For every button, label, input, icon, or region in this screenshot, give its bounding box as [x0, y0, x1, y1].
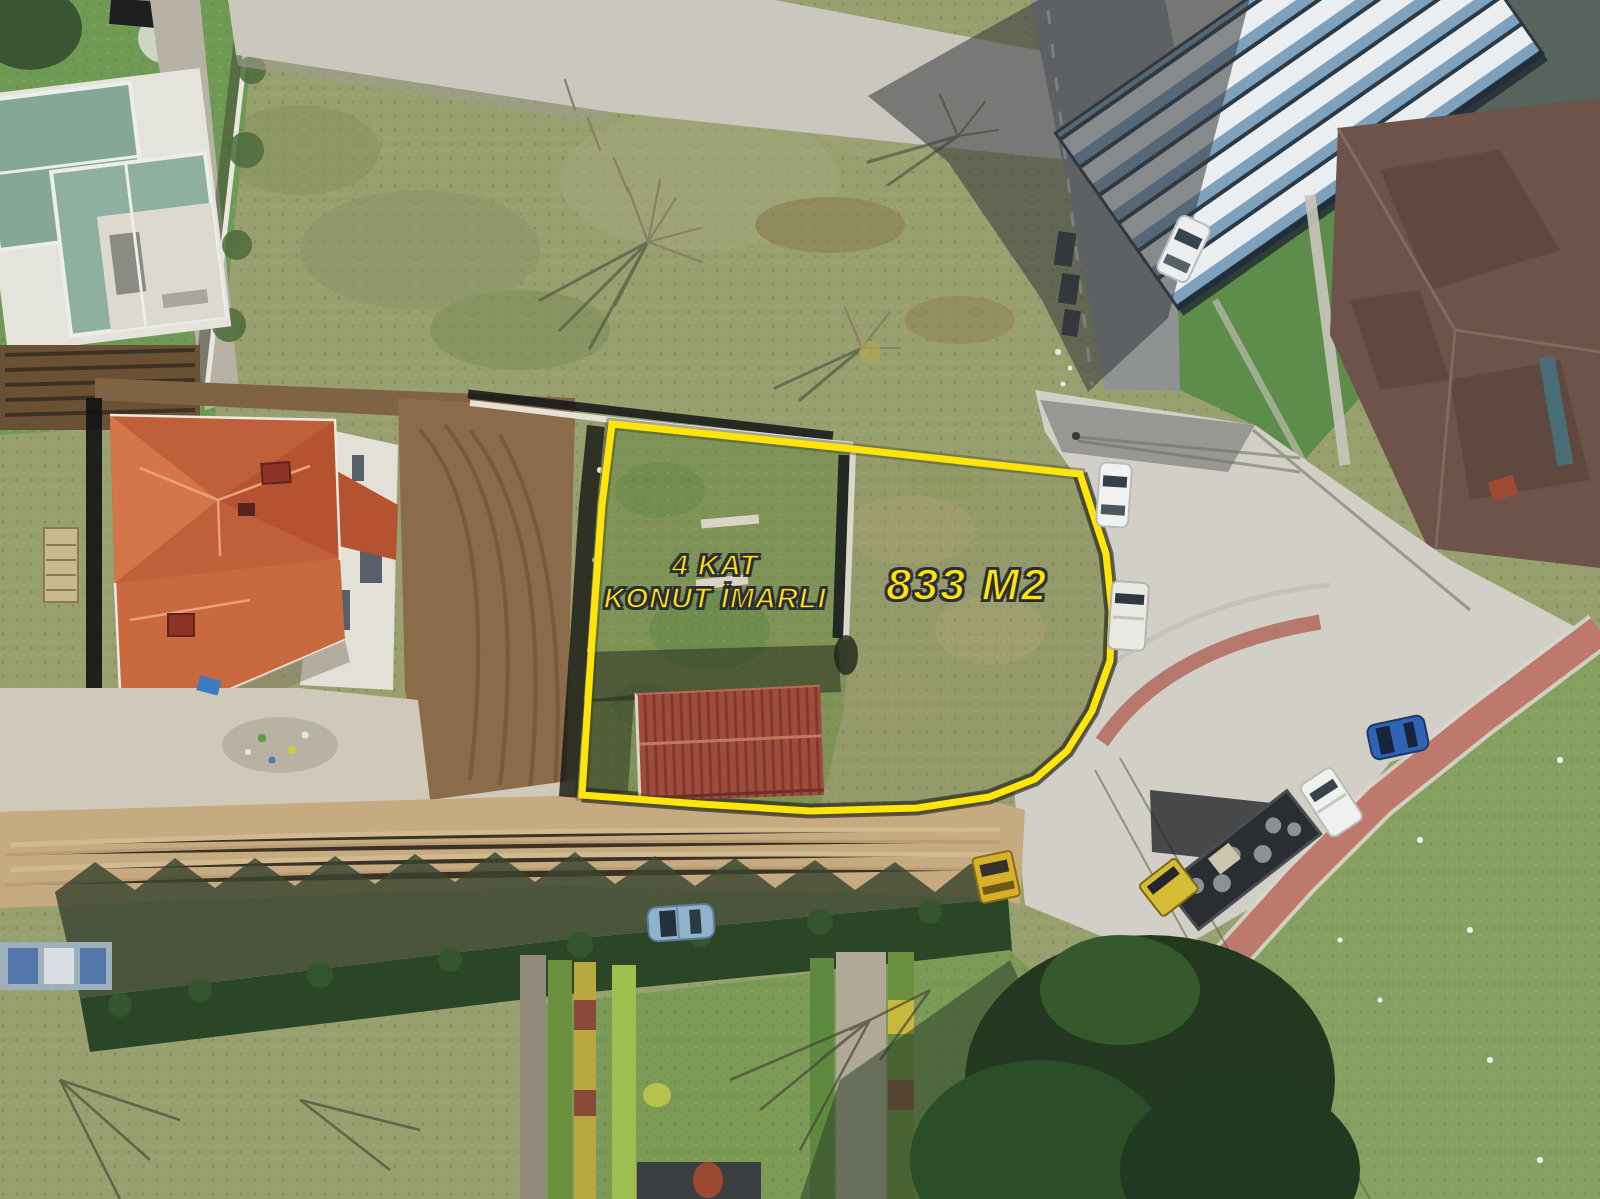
orange-roof-house: [110, 415, 398, 718]
yellow-loader: [972, 850, 1021, 903]
teal-roof-house: [0, 68, 231, 353]
light-blue-car: [647, 903, 715, 942]
yellow-bush: [643, 1083, 671, 1107]
white-van: [1108, 581, 1150, 651]
flower-hedge: [574, 962, 596, 1199]
chimney: [261, 462, 290, 484]
pallets-blue: [0, 942, 112, 990]
area-label: 833 M2: [862, 561, 1072, 609]
roof-window: [238, 503, 255, 516]
construction-site: [0, 378, 575, 812]
yellow-bush: [859, 341, 881, 363]
utility-pole: [1072, 432, 1080, 440]
garden-wall: [520, 955, 546, 1199]
zoning-label-line2: KONUT İMARLI: [565, 582, 865, 615]
hedge-strip: [548, 960, 572, 1199]
rubble-pile: [222, 717, 338, 773]
zoning-label: 4 KAT KONUT İMARLI: [565, 549, 865, 615]
red-shed: [636, 686, 824, 801]
aerial-photo: 4 KAT KONUT İMARLI 833 M2: [0, 0, 1600, 1199]
bright-hedge: [612, 965, 636, 1199]
villa-garden: [0, 0, 266, 435]
dark-tarp-strip: [86, 398, 102, 690]
white-car-parcel: [1096, 462, 1132, 528]
red-bush: [693, 1162, 723, 1198]
zoning-label-line1: 4 KAT: [565, 549, 865, 582]
chimney: [168, 614, 194, 636]
